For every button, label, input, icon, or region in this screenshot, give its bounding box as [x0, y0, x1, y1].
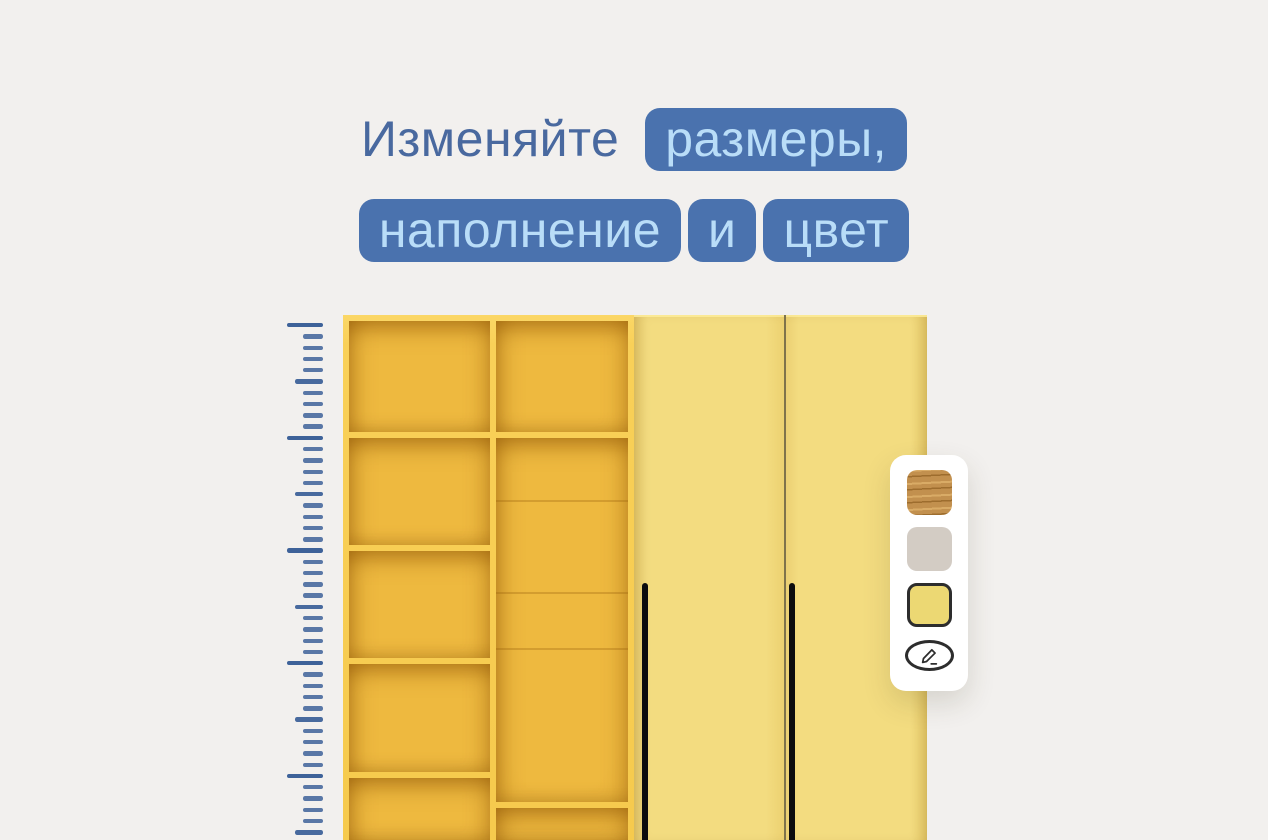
- ruler-tick-short: [303, 740, 323, 744]
- color-picker-panel: [890, 455, 968, 691]
- ruler-tick-short: [303, 402, 323, 406]
- ruler-tick-short: [303, 447, 323, 451]
- ruler-tick-short: [303, 368, 323, 372]
- ruler-tick-short: [303, 819, 323, 823]
- ruler-tick-short: [303, 706, 323, 710]
- headline-chip-color: цвет: [763, 199, 909, 262]
- ruler-tick-short: [303, 729, 323, 733]
- shelf-compartment: [349, 551, 490, 658]
- headline-line-2: наполнение и цвет: [359, 199, 909, 262]
- ruler-tick-short: [303, 796, 323, 800]
- shelf-compartment: [349, 438, 490, 545]
- headline-chip-filling: наполнение: [359, 199, 681, 262]
- ruler-tick-short: [303, 458, 323, 462]
- height-ruler: [287, 323, 323, 840]
- ruler-tick-short: [303, 593, 323, 597]
- ruler-tick-medium: [295, 605, 323, 609]
- ruler-tick-medium: [295, 492, 323, 496]
- color-swatch-oak-wood[interactable]: [907, 470, 952, 515]
- back-panel-seam: [496, 500, 628, 502]
- shelf-compartment: [496, 808, 628, 840]
- ruler-tick-short: [303, 537, 323, 541]
- ruler-tick-short: [303, 503, 323, 507]
- pencil-edit-icon: [918, 645, 940, 667]
- ruler-tick-short: [303, 627, 323, 631]
- back-panel-seam: [496, 648, 628, 650]
- shelf-compartment: [349, 321, 490, 432]
- wardrobe-open-shelving[interactable]: [343, 315, 634, 840]
- ruler-tick-short: [303, 672, 323, 676]
- shelf-compartment: [349, 778, 490, 840]
- ruler-tick-long: [287, 548, 323, 552]
- ruler-tick-long: [287, 323, 323, 327]
- ruler-tick-short: [303, 616, 323, 620]
- ruler-tick-short: [303, 391, 323, 395]
- ruler-tick-short: [303, 334, 323, 338]
- ruler-tick-short: [303, 571, 323, 575]
- shelf-compartment: [349, 664, 490, 772]
- color-swatch-list: [907, 470, 952, 627]
- ruler-tick-short: [303, 526, 323, 530]
- headline-chip-and: и: [688, 199, 756, 262]
- back-panel-seam: [496, 592, 628, 594]
- ruler-tick-short: [303, 515, 323, 519]
- ruler-tick-short: [303, 650, 323, 654]
- ruler-tick-short: [303, 346, 323, 350]
- wardrobe-preview: [343, 315, 927, 840]
- door-handle: [789, 583, 795, 840]
- ruler-tick-short: [303, 470, 323, 474]
- ruler-tick-short: [303, 785, 323, 789]
- ruler-tick-medium: [295, 830, 323, 834]
- ruler-tick-long: [287, 774, 323, 778]
- ruler-tick-long: [287, 661, 323, 665]
- custom-color-edit-button[interactable]: [905, 640, 954, 671]
- door-handle: [642, 583, 648, 840]
- shelf-compartment-tall: [496, 438, 628, 802]
- ruler-tick-short: [303, 763, 323, 767]
- ruler-tick-short: [303, 695, 323, 699]
- ruler-tick-medium: [295, 379, 323, 383]
- ruler-tick-short: [303, 808, 323, 812]
- headline-chip-sizes: размеры,: [645, 108, 907, 171]
- ruler-tick-short: [303, 424, 323, 428]
- ruler-tick-short: [303, 684, 323, 688]
- headline: Изменяйте размеры, наполнение и цвет: [0, 108, 1268, 262]
- promo-banner: Изменяйте размеры, наполнение и цвет: [0, 0, 1268, 840]
- ruler-tick-short: [303, 582, 323, 586]
- color-swatch-yellow[interactable]: [907, 583, 952, 627]
- color-swatch-greige[interactable]: [907, 527, 952, 571]
- headline-word-change: Изменяйте: [361, 108, 619, 171]
- ruler-tick-short: [303, 481, 323, 485]
- ruler-tick-long: [287, 436, 323, 440]
- wardrobe-door-left[interactable]: [634, 315, 784, 840]
- ruler-tick-medium: [295, 717, 323, 721]
- ruler-tick-short: [303, 639, 323, 643]
- ruler-tick-short: [303, 357, 323, 361]
- ruler-tick-short: [303, 560, 323, 564]
- ruler-tick-short: [303, 413, 323, 417]
- ruler-tick-short: [303, 751, 323, 755]
- shelf-compartment: [496, 321, 628, 432]
- headline-line-1: Изменяйте размеры,: [361, 108, 907, 171]
